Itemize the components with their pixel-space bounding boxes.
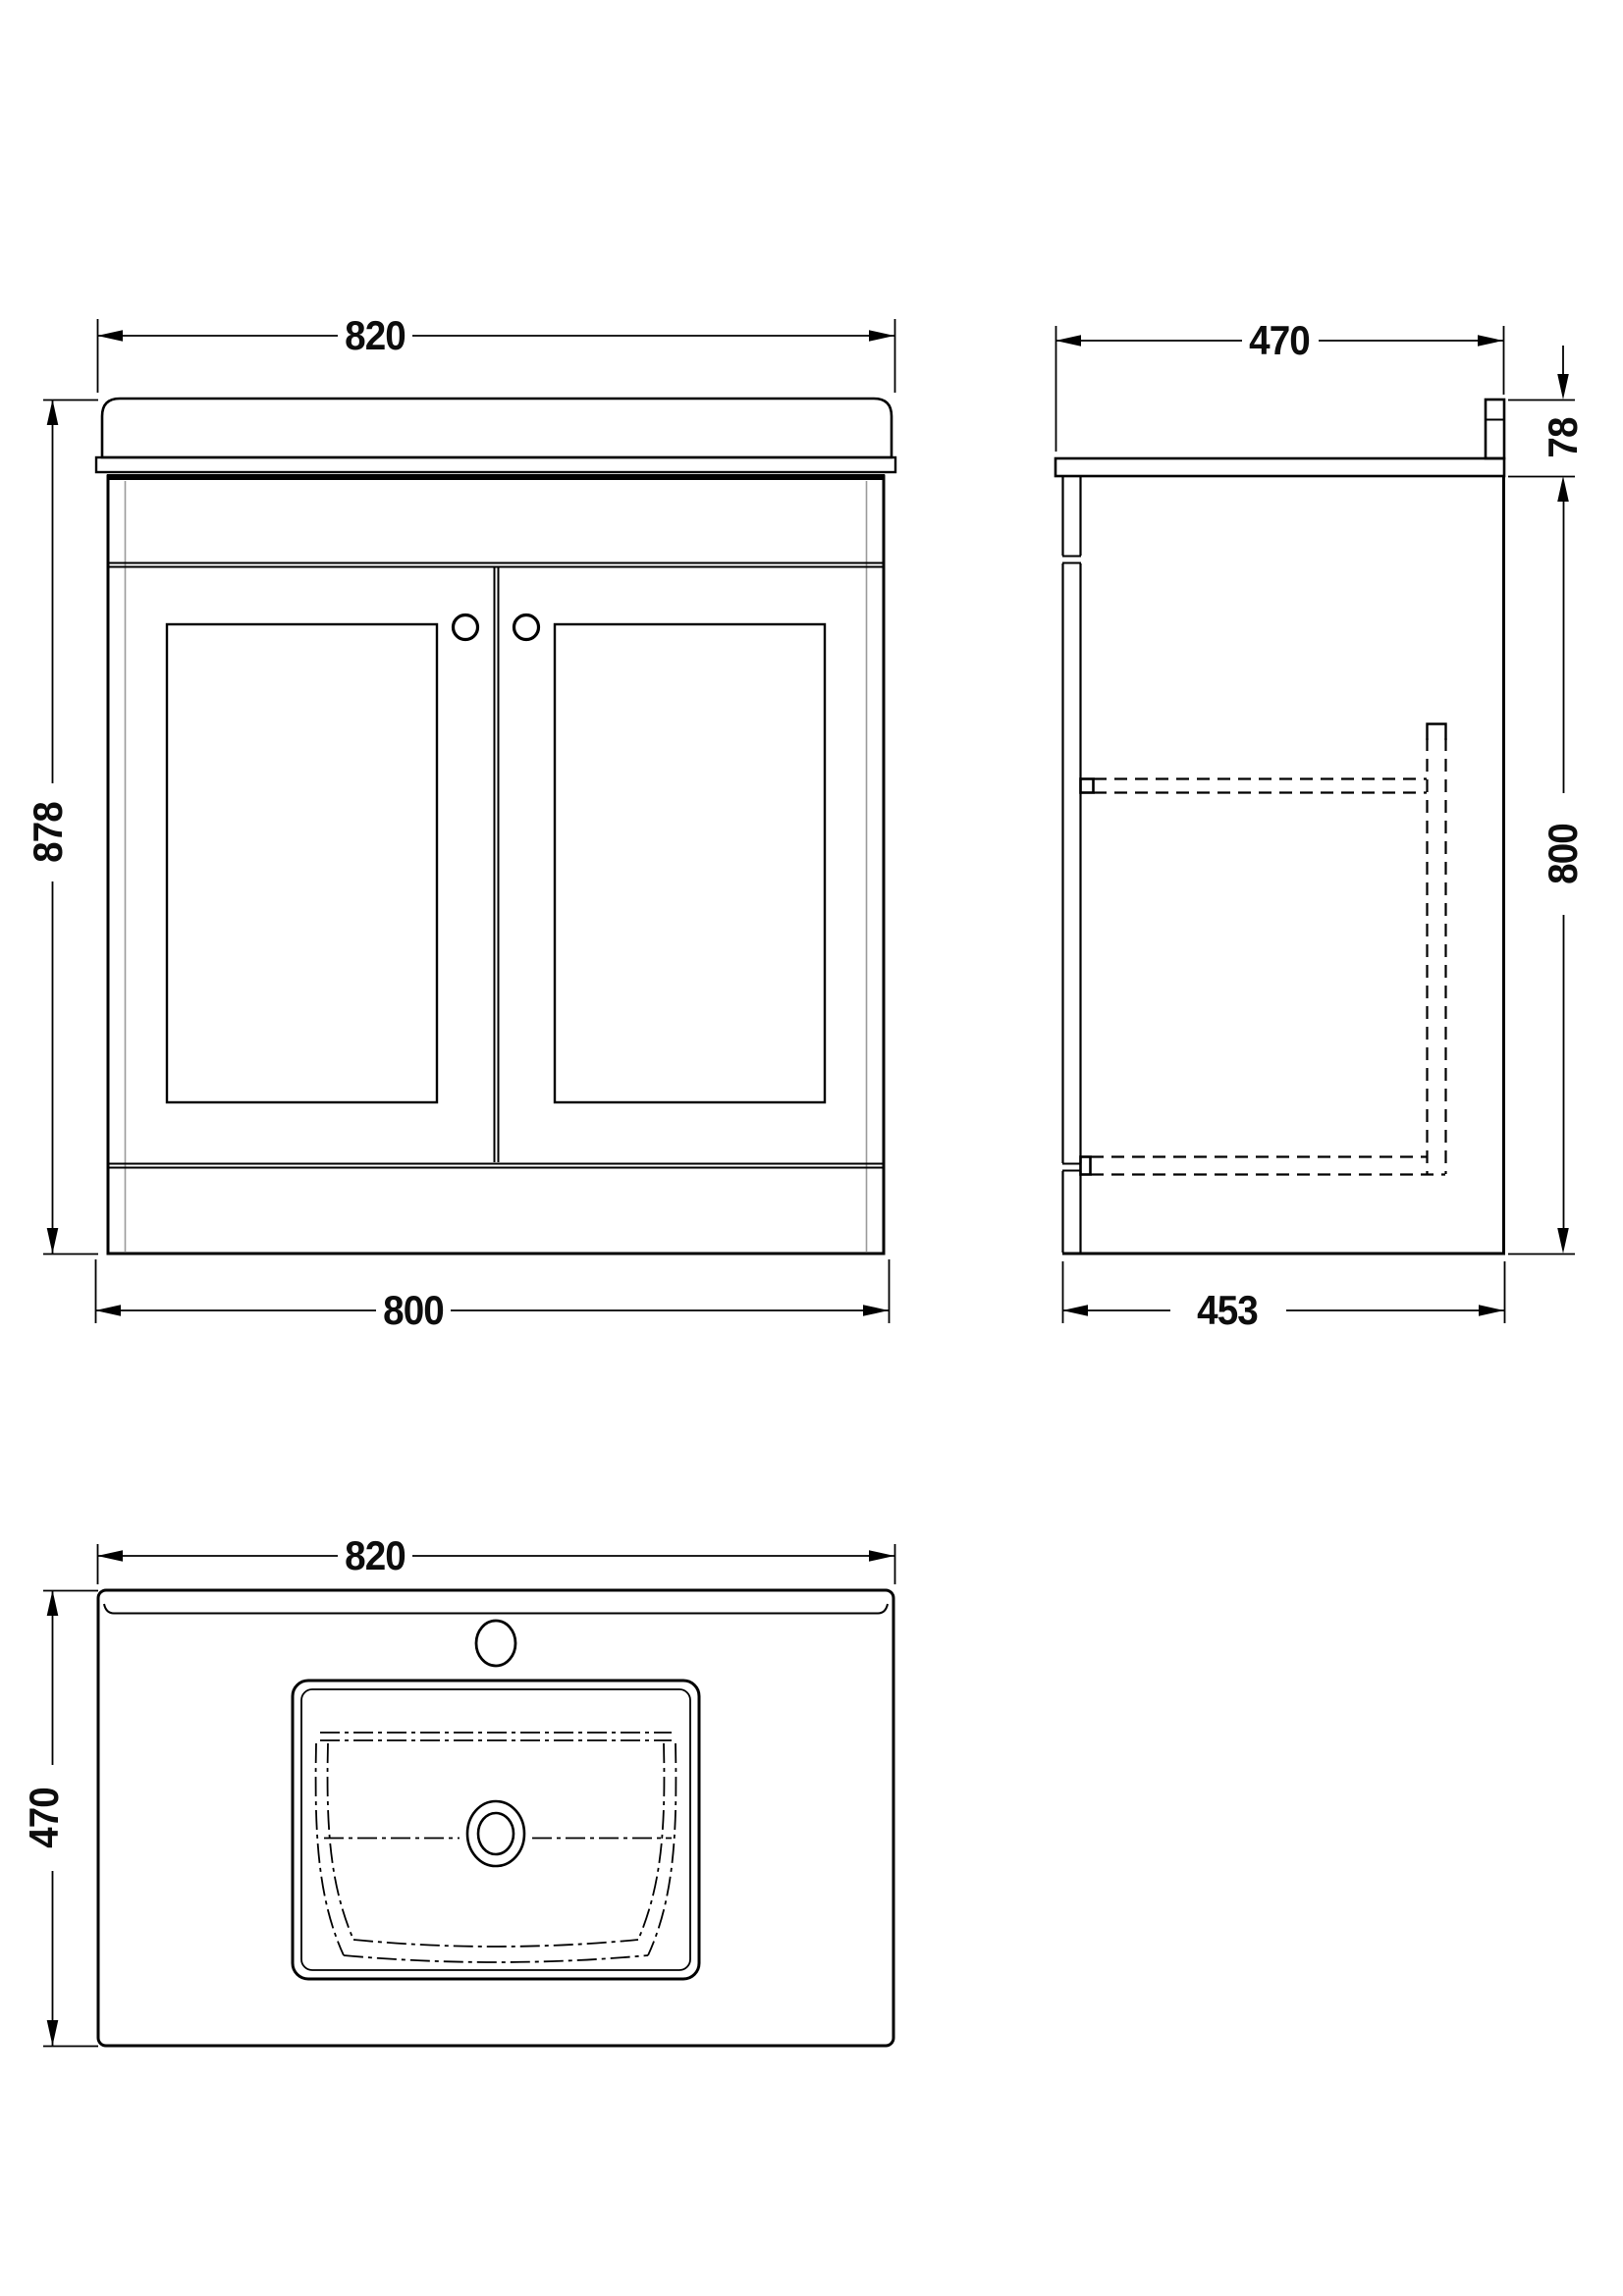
side-hidden-bottom-shelf [1081, 1157, 1446, 1175]
plan-worktop-outline [98, 1590, 893, 2046]
side-worktop-slab [1055, 458, 1504, 476]
side-upstand [1486, 400, 1504, 458]
plan-upstand-line [104, 1604, 888, 1614]
dim-label-side-bottom-depth: 453 [1191, 1289, 1265, 1332]
plan-basin-outer-rim [293, 1681, 699, 1979]
front-door-bottom-line [109, 1164, 883, 1168]
front-top-width-dimension [97, 319, 895, 393]
side-hidden-back-panel [1428, 724, 1446, 1175]
plan-drain-inner [478, 1813, 514, 1854]
front-worktop-slab [102, 399, 892, 457]
dim-label-side-top-depth: 470 [1243, 319, 1317, 362]
vanity-unit-line-drawing [0, 0, 1623, 2296]
front-cabinet-outline [108, 476, 884, 1254]
front-elevation-view [43, 319, 895, 1323]
side-bottom-depth-dimension [1062, 1261, 1505, 1323]
dim-label-front-height: 878 [27, 796, 70, 870]
front-right-door-panel [555, 624, 825, 1102]
dim-label-side-cabinet-height: 800 [1542, 818, 1585, 891]
plan-basin-interior-lines [316, 1733, 676, 1962]
front-left-door-knob [454, 615, 478, 640]
plan-tap-hole [476, 1621, 515, 1666]
side-elevation-view [1055, 326, 1575, 1323]
dim-label-plan-depth: 470 [23, 1782, 66, 1855]
dim-label-front-top-width: 820 [339, 314, 412, 357]
front-right-door-knob [514, 615, 539, 640]
front-bottom-width-dimension [95, 1259, 890, 1323]
technical-drawing-canvas: 820 878 800 470 78 800 453 820 470 [0, 0, 1623, 2296]
plan-drain-outer [467, 1801, 524, 1866]
side-door-front-edge [1063, 477, 1081, 1253]
front-worktop-ledge [96, 457, 895, 472]
dim-label-plan-width: 820 [339, 1534, 412, 1577]
front-left-door-panel [167, 624, 437, 1102]
plan-width-dimension [97, 1544, 895, 1584]
side-hidden-shelf [1081, 779, 1428, 793]
dim-label-side-worktop-height: 78 [1542, 411, 1585, 464]
plan-view [43, 1544, 895, 2047]
front-door-gap-line [495, 567, 499, 1162]
side-door-edge-break-caps [1062, 557, 1081, 1171]
front-door-top-line [109, 563, 883, 567]
dim-label-front-bottom-width: 800 [377, 1289, 451, 1332]
front-carcass-side-lines [126, 481, 867, 1252]
plan-basin-inner-rim [301, 1689, 690, 1970]
